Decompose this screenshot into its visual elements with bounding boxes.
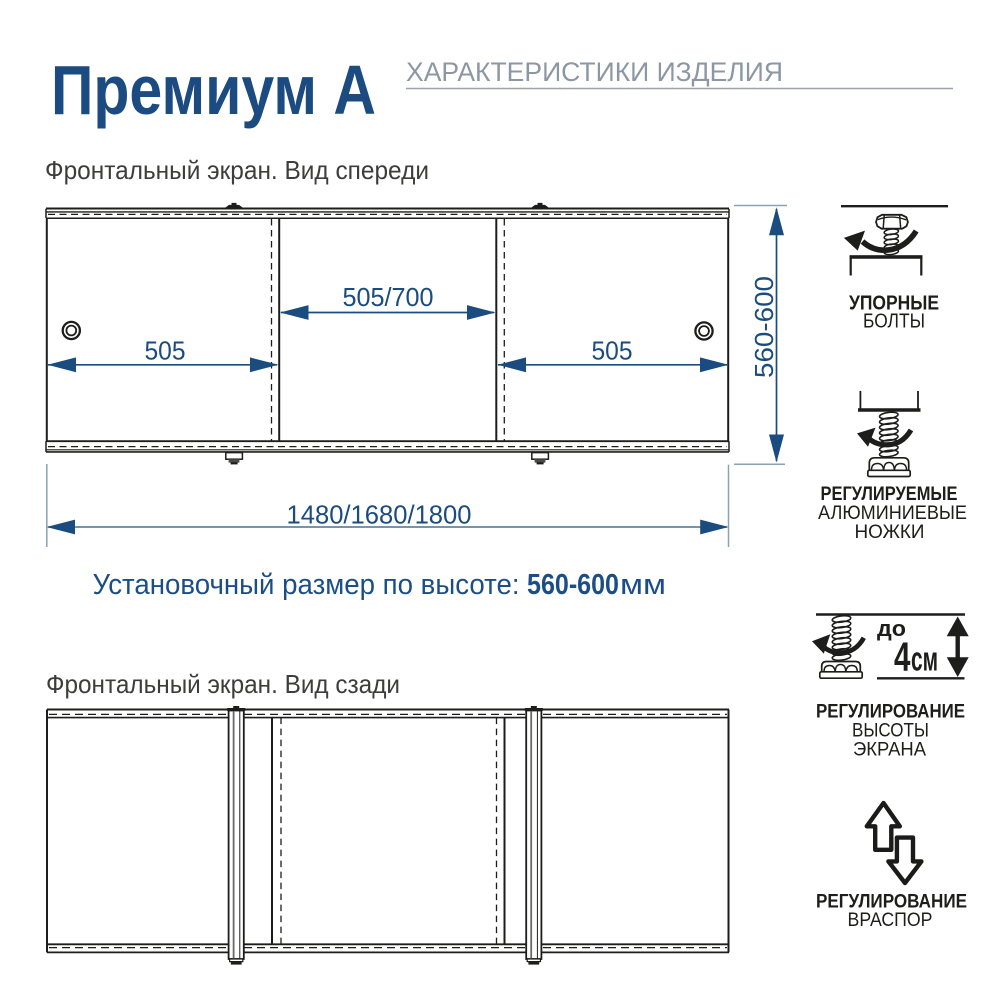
- svg-text:505/700: 505/700: [343, 282, 434, 312]
- svg-text:Установочный размер по высоте:: Установочный размер по высоте:: [93, 569, 520, 601]
- svg-text:560-600: 560-600: [749, 276, 779, 378]
- svg-text:НОЖКИ: НОЖКИ: [855, 522, 925, 543]
- svg-text:АЛЮМИНИЕВЫЕ: АЛЮМИНИЕВЫЕ: [818, 503, 967, 524]
- svg-text:505: 505: [592, 336, 633, 366]
- svg-text:Фронтальный экран. Вид сзади: Фронтальный экран. Вид сзади: [46, 669, 400, 699]
- svg-text:ВЫСОТЫ: ВЫСОТЫ: [852, 720, 929, 741]
- svg-text:ХАРАКТЕРИСТИКИ ИЗДЕЛИЯ: ХАРАКТЕРИСТИКИ ИЗДЕЛИЯ: [406, 57, 783, 87]
- svg-text:4: 4: [894, 634, 911, 680]
- svg-text:505: 505: [145, 336, 186, 366]
- svg-text:мм: мм: [620, 569, 666, 601]
- svg-text:Премиум А: Премиум А: [51, 51, 376, 129]
- svg-text:см: см: [911, 640, 938, 678]
- svg-text:БОЛТЫ: БОЛТЫ: [863, 311, 925, 333]
- svg-text:560-600: 560-600: [527, 569, 619, 601]
- svg-text:1480/1680/1800: 1480/1680/1800: [287, 499, 472, 529]
- svg-text:ВРАСПОР: ВРАСПОР: [848, 910, 933, 931]
- svg-text:РЕГУЛИРУЕМЫЕ: РЕГУЛИРУЕМЫЕ: [821, 484, 958, 505]
- svg-text:ЭКРАНА: ЭКРАНА: [853, 740, 926, 761]
- svg-text:Фронтальный экран. Вид спереди: Фронтальный экран. Вид спереди: [45, 155, 429, 185]
